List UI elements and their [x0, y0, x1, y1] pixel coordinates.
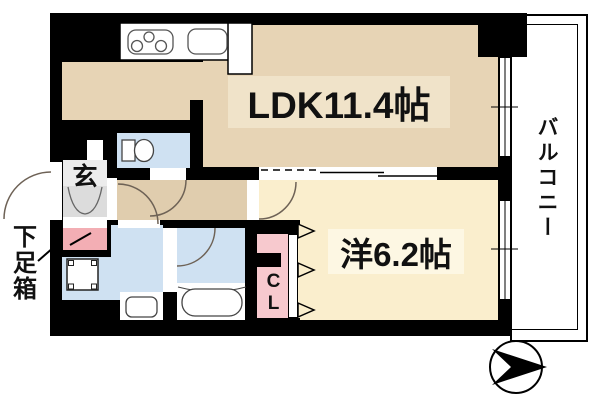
genkan-lower-opening	[63, 217, 107, 228]
room-bathroom	[177, 228, 247, 283]
bedroom-door-opening	[247, 180, 259, 220]
room-washroom-alcove	[62, 257, 120, 300]
closet-wall-top	[245, 220, 300, 234]
bathtub-area	[177, 283, 247, 320]
sliding-door-ldk-bedroom	[259, 167, 437, 180]
bedroom-room-label: 洋6.2帖	[328, 229, 464, 274]
bathroom-door-opening	[163, 228, 177, 292]
room-kitchen-strip	[62, 62, 203, 120]
floor-plan: LDK11.4帖 洋6.2帖 バルコニー 玄 下足箱 CL	[0, 0, 600, 400]
closet-door-track	[288, 234, 298, 318]
window-bedroom	[499, 200, 511, 300]
closet-label: CL	[259, 268, 287, 318]
toilet-door-opening	[150, 168, 186, 180]
wall-corner-ne	[478, 25, 498, 57]
shoe-box-label: 下足箱	[6, 220, 38, 306]
vanity-area	[120, 292, 163, 320]
closet-wall-stub	[257, 253, 281, 267]
entrance-door-arc	[4, 172, 51, 219]
window-ldk	[499, 57, 511, 157]
genkan-step-opening	[107, 178, 117, 220]
washroom-door-opening	[118, 220, 160, 228]
genkan-label: 玄	[63, 161, 107, 189]
room-hallway	[117, 180, 247, 220]
room-toilet	[117, 133, 190, 168]
balcony-label: バルコニー	[532, 98, 560, 258]
wall-top-right	[510, 13, 527, 57]
shoe-box	[63, 228, 107, 250]
entrance-door-opening	[50, 162, 62, 220]
wall-stub-kitchen	[190, 100, 203, 180]
ldk-room-label: LDK11.4帖	[228, 76, 450, 128]
closet-wall-bottom	[245, 318, 300, 330]
closet-wall-left	[245, 234, 257, 330]
direction-arrow-icon	[490, 341, 547, 393]
